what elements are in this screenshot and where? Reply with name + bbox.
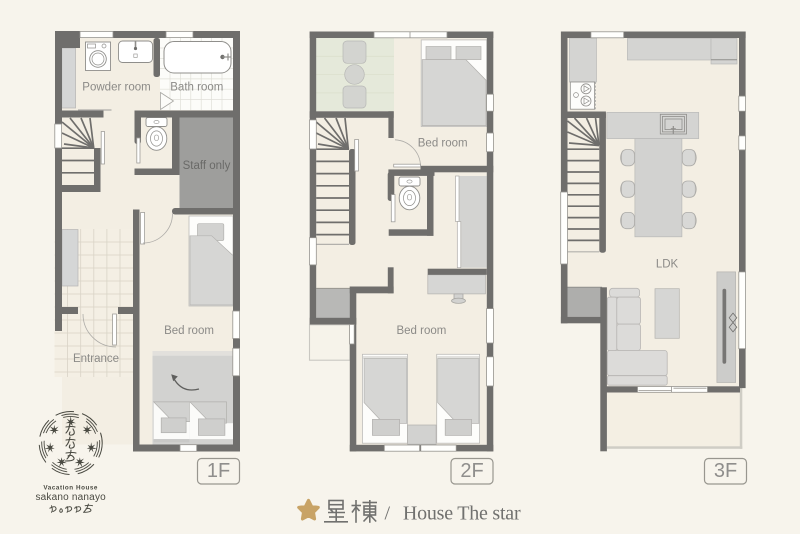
svg-text:House The star: House The star xyxy=(403,503,521,525)
svg-text:Staff only: Staff only xyxy=(183,160,231,172)
svg-text:Entrance: Entrance xyxy=(73,353,119,365)
svg-text:1F: 1F xyxy=(207,460,230,482)
svg-text:Bed room: Bed room xyxy=(164,325,214,337)
svg-text:sakano nanayo: sakano nanayo xyxy=(35,492,106,503)
svg-text:LDK: LDK xyxy=(656,259,679,271)
svg-text:Powder room: Powder room xyxy=(82,82,150,94)
svg-text:/: / xyxy=(385,503,391,525)
svg-text:Bed room: Bed room xyxy=(396,325,446,337)
svg-text:Bed room: Bed room xyxy=(418,137,468,149)
svg-text:Vacation House: Vacation House xyxy=(43,485,98,492)
svg-text:Bath room: Bath room xyxy=(170,82,223,94)
svg-text:2F: 2F xyxy=(460,460,483,482)
svg-text:3F: 3F xyxy=(714,460,737,482)
